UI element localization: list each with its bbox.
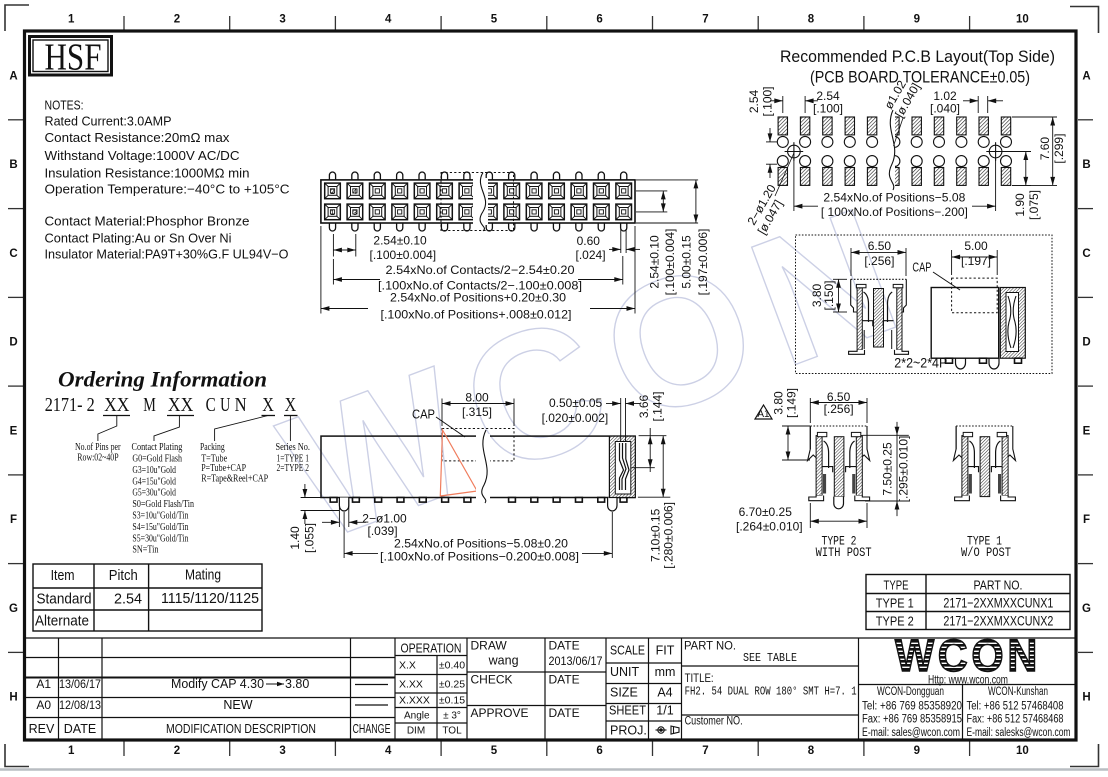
svg-text:C: C <box>9 248 17 260</box>
svg-text:X: X <box>285 395 297 416</box>
svg-text:REV: REV <box>29 722 55 736</box>
svg-text:Standard: Standard <box>37 591 92 608</box>
svg-text:10: 10 <box>1016 14 1029 26</box>
svg-text:Contact Material:Phosphor Bron: Contact Material:Phosphor Bronze <box>45 213 250 228</box>
svg-text:WITH POST: WITH POST <box>816 545 872 560</box>
svg-text:G0=Gold Flash: G0=Gold Flash <box>132 453 182 465</box>
svg-text:Modify CAP 4.30: Modify CAP 4.30 <box>171 677 264 691</box>
svg-text:Recommended P.C.B Layout(Top S: Recommended P.C.B Layout(Top Side) <box>780 48 1055 66</box>
svg-text:G: G <box>1082 603 1091 615</box>
svg-text:MODIFICATION DESCRIPTION: MODIFICATION DESCRIPTION <box>166 722 316 736</box>
svg-text:CHANGE: CHANGE <box>353 722 391 736</box>
svg-text:Fax: +86 769 85358915: Fax: +86 769 85358915 <box>862 714 962 726</box>
svg-text:2: 2 <box>330 187 334 196</box>
svg-text:[.040]: [.040] <box>930 101 960 115</box>
svg-text:8: 8 <box>808 14 815 26</box>
svg-text:G4=15u"Gold: G4=15u"Gold <box>132 475 176 487</box>
svg-text:7.50±0.25: 7.50±0.25 <box>881 442 895 496</box>
svg-text:Contact Resistance:20mΩ max: Contact Resistance:20mΩ max <box>45 130 231 145</box>
svg-text:X: X <box>262 395 274 416</box>
svg-text:A1: A1 <box>36 677 51 691</box>
svg-text:7.60: 7.60 <box>1038 137 1052 161</box>
svg-text:2171−2XXMXXCUNX2: 2171−2XXMXXCUNX2 <box>943 614 1053 629</box>
svg-text:2171−2XXMXXCUNX1: 2171−2XXMXXCUNX1 <box>943 596 1053 611</box>
svg-text:[.264±0.010]: [.264±0.010] <box>736 520 803 534</box>
svg-text:[.256]: [.256] <box>824 402 854 416</box>
svg-text:0.50±0.05: 0.50±0.05 <box>549 396 603 410</box>
svg-text:6: 6 <box>596 745 602 757</box>
svg-text:2.54±0.10: 2.54±0.10 <box>647 235 661 289</box>
svg-text:S3=10u"Gold/Tin: S3=10u"Gold/Tin <box>132 510 188 522</box>
svg-text:5: 5 <box>491 14 498 26</box>
svg-text:2.54: 2.54 <box>114 591 142 608</box>
svg-text:5.00: 5.00 <box>964 239 988 253</box>
svg-text:SIZE: SIZE <box>610 686 638 700</box>
svg-text:B: B <box>1082 159 1090 171</box>
svg-text:2.54: 2.54 <box>747 89 761 113</box>
svg-text:CHECK: CHECK <box>471 673 513 687</box>
svg-text:3.66: 3.66 <box>637 394 651 418</box>
svg-text:3: 3 <box>279 745 285 757</box>
svg-text:2=TYPE 2: 2=TYPE 2 <box>277 462 310 474</box>
svg-text:5: 5 <box>491 745 498 757</box>
svg-text:F: F <box>1083 514 1090 526</box>
svg-text:CAP: CAP <box>412 406 435 421</box>
svg-text:B: B <box>9 159 17 171</box>
svg-text:2171- 2: 2171- 2 <box>45 395 95 416</box>
svg-text:6.50: 6.50 <box>868 239 892 253</box>
svg-text:1.90: 1.90 <box>1013 193 1027 217</box>
svg-text:Ordering Information: Ordering Information <box>58 367 267 392</box>
svg-text:5.00±0.15: 5.00±0.15 <box>679 235 693 289</box>
svg-text:[.100xNo.of Positions−0.200±0.: [.100xNo.of Positions−0.200±0.008] <box>380 549 579 563</box>
svg-text:DATE: DATE <box>549 639 580 653</box>
svg-text:Withstand Voltage:1000V AC/DC: Withstand Voltage:1000V AC/DC <box>45 148 240 163</box>
svg-text:[ 100xNo.of Positions−.200]: [ 100xNo.of Positions−.200] <box>821 205 968 219</box>
svg-text:S4=15u"Gold/Tin: S4=15u"Gold/Tin <box>132 521 188 533</box>
svg-text:TYPE 2: TYPE 2 <box>876 614 914 629</box>
svg-text:Fax: +86 512 57468468: Fax: +86 512 57468468 <box>967 714 1064 726</box>
svg-text:8: 8 <box>808 745 815 757</box>
svg-text:2.54xNo.of Positions+0.20±0.30: 2.54xNo.of Positions+0.20±0.30 <box>390 290 566 304</box>
svg-text:8.00: 8.00 <box>465 390 489 404</box>
svg-text:3.80: 3.80 <box>285 677 309 691</box>
svg-text:±0.15: ±0.15 <box>439 695 465 707</box>
svg-text:[.197]: [.197] <box>961 254 991 268</box>
svg-text:Operation Temperature:−40°C to: Operation Temperature:−40°C to +105°C <box>45 182 290 197</box>
svg-text:Tel: +86 512 57468408: Tel: +86 512 57468408 <box>967 700 1064 712</box>
svg-text:3: 3 <box>353 208 357 217</box>
svg-text:4: 4 <box>353 187 357 196</box>
svg-text:1.40: 1.40 <box>288 526 302 550</box>
svg-text:XX: XX <box>168 395 193 416</box>
svg-text:0.60: 0.60 <box>577 234 601 248</box>
svg-text:DATE: DATE <box>549 673 580 687</box>
svg-text:OPERATION: OPERATION <box>401 642 462 656</box>
svg-text:TITLE:: TITLE: <box>685 671 714 685</box>
svg-text:1/1: 1/1 <box>656 704 673 718</box>
svg-text:±0.40: ±0.40 <box>439 660 465 672</box>
svg-text:XX: XX <box>104 395 129 416</box>
svg-text:[.100xNo.of Positions+.008±0.0: [.100xNo.of Positions+.008±0.012] <box>381 307 572 321</box>
svg-text:13/06/17: 13/06/17 <box>59 677 101 691</box>
svg-text:G: G <box>9 603 18 615</box>
svg-text:[.100]: [.100] <box>813 101 843 115</box>
svg-text:[.150]: [.150] <box>822 280 836 310</box>
svg-text:SCALE: SCALE <box>610 644 645 658</box>
svg-text:A: A <box>1082 71 1090 83</box>
svg-text:2: 2 <box>174 745 180 757</box>
svg-text:7: 7 <box>702 745 708 757</box>
svg-text:[.149]: [.149] <box>784 388 798 418</box>
svg-text:Contact Plating: Contact Plating <box>132 441 183 453</box>
svg-text:Row:02~40P: Row:02~40P <box>77 452 118 464</box>
svg-text:G5=30u"Gold: G5=30u"Gold <box>132 487 176 499</box>
svg-text:[.100]: [.100] <box>761 86 775 116</box>
svg-text:[.197±0.006]: [.197±0.006] <box>696 229 710 296</box>
svg-text:[.020±0.002]: [.020±0.002] <box>542 411 609 425</box>
svg-text:HSF: HSF <box>45 37 102 79</box>
svg-text:PART NO.: PART NO. <box>974 578 1023 593</box>
svg-text:Contact Plating:Au or Sn Over: Contact Plating:Au or Sn Over Ni <box>45 230 232 245</box>
svg-text:W/O POST: W/O POST <box>961 545 1011 560</box>
svg-text:2: 2 <box>174 14 180 26</box>
svg-text:E-mail: sales@wcon.com: E-mail: sales@wcon.com <box>862 727 960 739</box>
svg-text:mm: mm <box>655 665 676 679</box>
svg-text:SEE TABLE: SEE TABLE <box>743 651 797 665</box>
svg-text:Item: Item <box>51 567 75 584</box>
svg-text:C: C <box>206 395 216 416</box>
svg-text:Pitch: Pitch <box>109 567 138 584</box>
svg-text:PART NO.: PART NO. <box>684 639 736 653</box>
svg-text:A4: A4 <box>657 686 672 700</box>
svg-text:DIM: DIM <box>407 726 425 737</box>
svg-text:2.54xNo.of Positions−5.08: 2.54xNo.of Positions−5.08 <box>823 190 965 204</box>
svg-text:SHEET: SHEET <box>609 704 646 718</box>
svg-text:[.280±0.006]: [.280±0.006] <box>661 502 675 569</box>
svg-text:NOTES:: NOTES: <box>45 98 84 113</box>
svg-text:DATE: DATE <box>64 722 96 736</box>
svg-text:2.54xNo.of Contacts/2−2.54±0.2: 2.54xNo.of Contacts/2−2.54±0.20 <box>386 263 575 277</box>
svg-text:A1: A1 <box>757 409 770 420</box>
svg-text:Alternate: Alternate <box>35 613 89 630</box>
svg-text:TOL: TOL <box>442 726 462 737</box>
svg-text:WCON-Dongguan: WCON-Dongguan <box>877 686 944 698</box>
svg-text:2013/06/17: 2013/06/17 <box>549 656 603 668</box>
svg-text:TYPE 1: TYPE 1 <box>876 596 914 611</box>
svg-text:1: 1 <box>68 14 75 26</box>
svg-text:3: 3 <box>279 14 285 26</box>
svg-text:[.075]: [.075] <box>1027 190 1041 220</box>
svg-text:[.315]: [.315] <box>462 405 492 419</box>
svg-text:9: 9 <box>914 14 920 26</box>
svg-text:[.295±0.010]: [.295±0.010] <box>897 436 911 503</box>
svg-text:2.54±0.10: 2.54±0.10 <box>373 234 427 248</box>
svg-text:1: 1 <box>68 745 75 757</box>
svg-text:E: E <box>1083 426 1091 438</box>
svg-text:H: H <box>9 692 17 704</box>
svg-text:Tel: +86 769 85358920: Tel: +86 769 85358920 <box>862 700 962 712</box>
svg-text:Series No.: Series No. <box>276 441 311 453</box>
svg-text:(PCB BOARD TOLERANCE±0.05): (PCB BOARD TOLERANCE±0.05) <box>810 69 1030 87</box>
svg-text:S5=30u"Gold/Tin: S5=30u"Gold/Tin <box>132 532 188 544</box>
svg-text:3.80: 3.80 <box>771 391 785 415</box>
svg-text:E-mail: salesks@wcon.com: E-mail: salesks@wcon.com <box>967 727 1071 739</box>
svg-text:9: 9 <box>914 745 920 757</box>
svg-text:10: 10 <box>1016 745 1029 757</box>
svg-text:12/08/13: 12/08/13 <box>59 698 101 712</box>
svg-text:U: U <box>220 395 230 416</box>
svg-text:E: E <box>10 426 18 438</box>
svg-text:S0=Gold Flash/Tin: S0=Gold Flash/Tin <box>132 498 194 510</box>
svg-text:Packing: Packing <box>200 441 225 453</box>
svg-text:[.144]: [.144] <box>650 391 664 421</box>
svg-text:X.XX: X.XX <box>399 679 423 691</box>
svg-text:wang: wang <box>488 654 519 668</box>
svg-text:±0.25: ±0.25 <box>439 679 465 691</box>
svg-text:D: D <box>1082 337 1090 349</box>
svg-text:A0: A0 <box>36 698 51 712</box>
svg-text:7.10±0.15: 7.10±0.15 <box>648 508 662 562</box>
svg-text:D: D <box>9 337 17 349</box>
svg-text:UNIT: UNIT <box>610 665 640 679</box>
svg-text:WCON-Kunshan: WCON-Kunshan <box>988 686 1048 698</box>
svg-text:[.299]: [.299] <box>1052 134 1066 164</box>
svg-text:H: H <box>1082 692 1090 704</box>
svg-text:2.54xNo.of Positions−5.08±0.20: 2.54xNo.of Positions−5.08±0.20 <box>394 536 568 550</box>
svg-text:6: 6 <box>596 14 602 26</box>
svg-text:FIT: FIT <box>656 644 675 658</box>
svg-text:N: N <box>235 395 247 416</box>
svg-text:R=Tape&Reel+CAP: R=Tape&Reel+CAP <box>201 472 268 484</box>
svg-text:Customer NO.: Customer NO. <box>685 714 743 728</box>
svg-text:TYPE: TYPE <box>884 578 909 593</box>
svg-text:Rated Current:3.0AMP: Rated Current:3.0AMP <box>45 114 172 129</box>
svg-text:2*2~2*4P: 2*2~2*4P <box>894 355 947 371</box>
svg-text:PROJ.: PROJ. <box>610 724 647 738</box>
svg-text:[.100±0.004]: [.100±0.004] <box>663 229 677 296</box>
svg-text:4: 4 <box>385 745 392 757</box>
svg-text:[.024]: [.024] <box>576 248 606 262</box>
svg-text:APPROVE: APPROVE <box>471 706 529 720</box>
svg-text:F: F <box>10 514 17 526</box>
svg-text:Angle: Angle <box>404 711 430 722</box>
svg-text:Http: www.wcon.com: Http: www.wcon.com <box>928 672 1008 686</box>
svg-text:[.055]: [.055] <box>302 523 316 553</box>
svg-text:CAP: CAP <box>912 259 931 274</box>
svg-text:G3=10u"Gold: G3=10u"Gold <box>132 464 176 476</box>
svg-text:A: A <box>9 71 17 83</box>
svg-text:M: M <box>143 395 156 416</box>
svg-text:± 3°: ± 3° <box>443 711 461 722</box>
svg-text:FH2. 54 DUAL ROW 180° SMT H=7.: FH2. 54 DUAL ROW 180° SMT H=7. 1 <box>685 685 857 699</box>
svg-text:4: 4 <box>385 14 392 26</box>
svg-text:6.70±0.25: 6.70±0.25 <box>739 505 793 519</box>
svg-text:7: 7 <box>702 14 708 26</box>
svg-text:X.X: X.X <box>399 660 416 672</box>
svg-text:[.100±0.004]: [.100±0.004] <box>370 248 437 262</box>
svg-text:DRAW: DRAW <box>471 639 508 653</box>
svg-text:X.XXX: X.XXX <box>399 695 430 707</box>
svg-text:1115/1120/1125: 1115/1120/1125 <box>161 590 259 607</box>
svg-text:[.256]: [.256] <box>864 254 894 268</box>
svg-text:1: 1 <box>330 208 334 217</box>
svg-text:SN=Tin: SN=Tin <box>132 544 158 556</box>
svg-text:C: C <box>1082 248 1090 260</box>
svg-text:Mating: Mating <box>185 567 221 584</box>
svg-text:NEW: NEW <box>223 698 252 712</box>
svg-text:Insulation Resistance:1000MΩ m: Insulation Resistance:1000MΩ min <box>45 165 250 180</box>
svg-text:DATE: DATE <box>549 706 580 720</box>
svg-text:Insulator Material:PA9T+30%G.F: Insulator Material:PA9T+30%G.F UL94V−O <box>45 247 289 262</box>
